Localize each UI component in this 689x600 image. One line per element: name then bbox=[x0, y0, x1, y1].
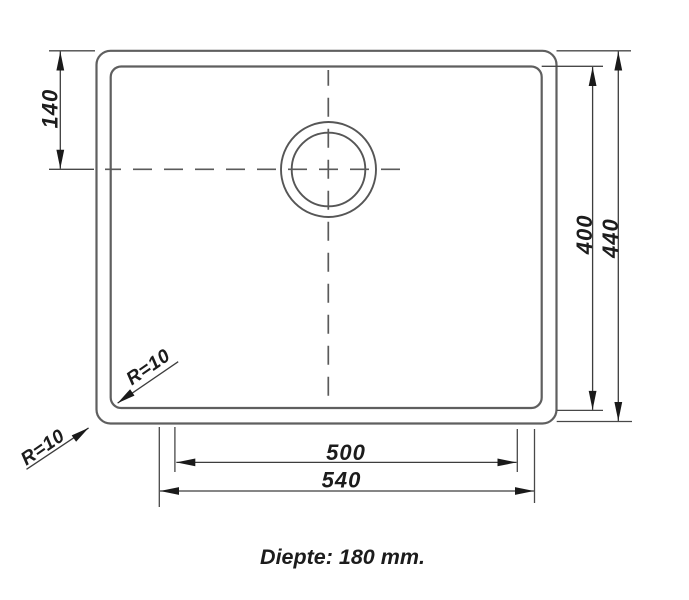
svg-text:440: 440 bbox=[598, 218, 623, 259]
svg-text:540: 540 bbox=[322, 467, 362, 492]
svg-text:140: 140 bbox=[38, 89, 63, 129]
svg-text:500: 500 bbox=[326, 440, 366, 465]
svg-text:400: 400 bbox=[572, 214, 597, 255]
svg-text:Diepte: 180 mm.: Diepte: 180 mm. bbox=[260, 545, 425, 569]
